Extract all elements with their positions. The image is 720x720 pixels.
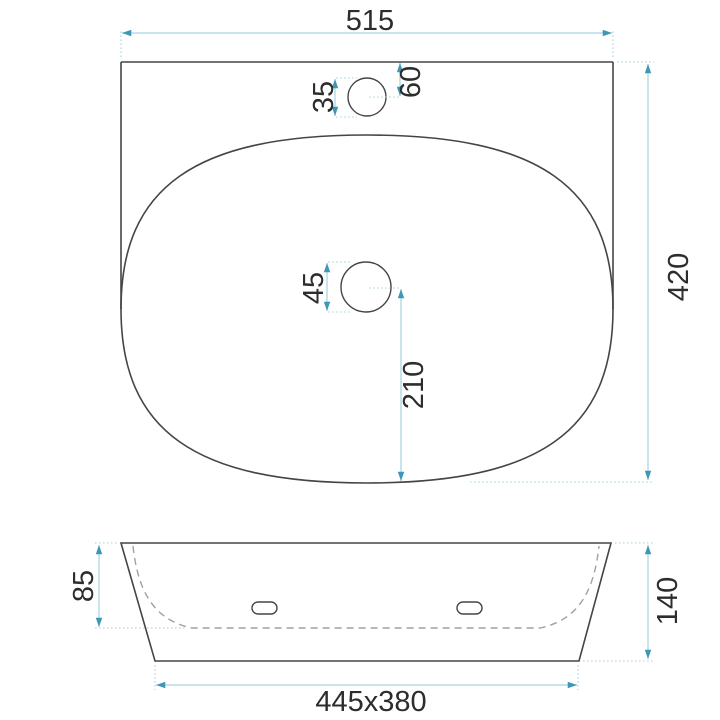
front-view-body-outline [121,543,611,661]
dim-faucet-offset-label: 60 [395,66,427,98]
dim-overall-depth-extension-lines [470,62,654,482]
dim-total-height-label: 140 [652,577,684,625]
top-view [121,62,613,483]
dim-drain-diameter-label: 45 [298,272,330,304]
basin-rim [121,135,613,483]
front-view-dimensions: 85 140 445x380 [68,543,684,718]
dim-basin-depth-extension-lines [95,543,186,628]
dim-total-height: 140 [583,543,684,661]
dim-faucet-diameter: 35 [308,78,357,117]
drawing-canvas: 515 420 35 60 45 210 [0,0,720,720]
dim-overall-depth-label: 420 [663,253,695,301]
overflow-hole-right [457,602,482,614]
dim-total-height-extension-lines [583,543,654,661]
sink-technical-drawing: 515 420 35 60 45 210 [0,0,720,720]
top-view-dimensions: 515 420 35 60 45 210 [121,5,695,482]
basin-interior-hidden-profile [133,546,599,628]
dim-base-size: 445x380 [155,665,578,718]
dim-faucet-diameter-label: 35 [308,81,340,113]
drain-hole [341,262,391,312]
dim-basin-depth-label: 85 [68,570,100,602]
dim-drain-to-front-label: 210 [398,361,430,409]
dim-overall-width: 515 [121,5,613,57]
dim-drain-diameter: 45 [298,262,352,312]
dim-basin-depth: 85 [68,543,186,628]
front-view [121,543,611,661]
dim-overall-width-label: 515 [346,5,394,37]
faucet-hole [348,78,386,116]
top-view-body-outline [121,62,613,309]
dim-drain-to-front: 210 [369,288,430,481]
overflow-hole-left [252,602,277,614]
dim-overall-depth: 420 [470,62,695,482]
dim-base-size-label: 445x380 [315,686,426,718]
